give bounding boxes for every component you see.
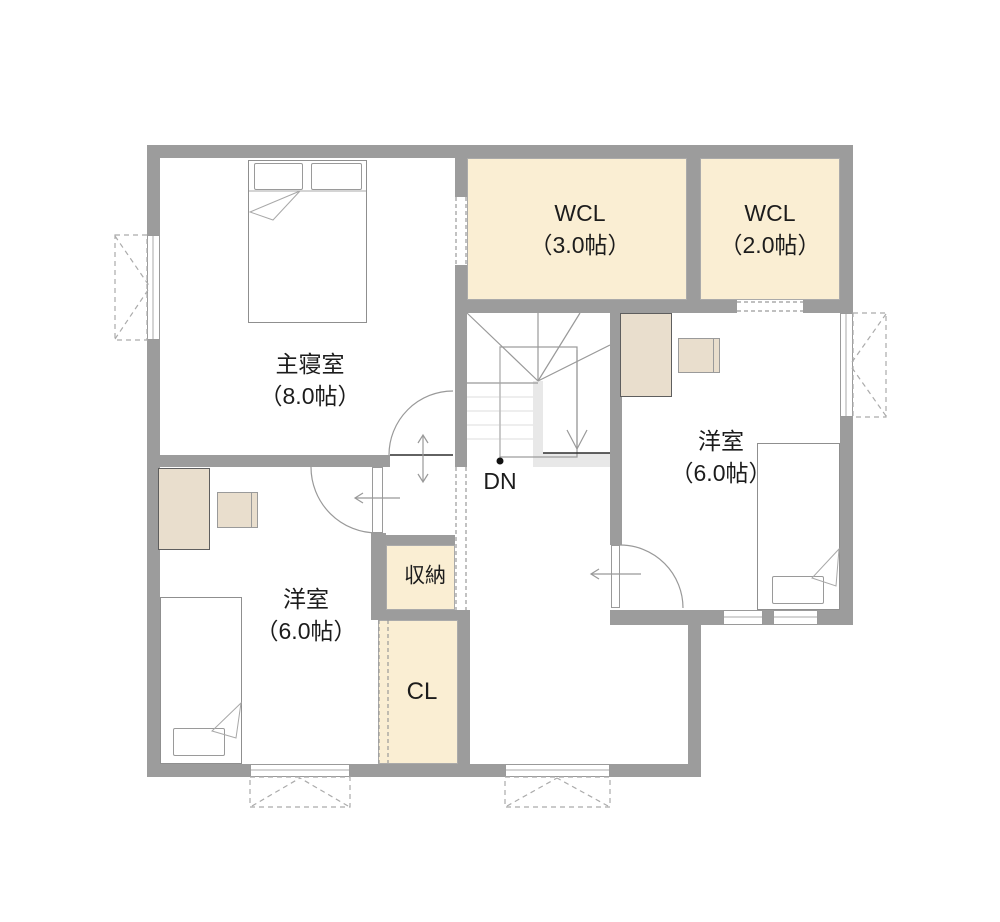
wall-rightroom-bottom-a xyxy=(610,610,723,625)
wall-wcl-bottom-right xyxy=(803,300,853,313)
door-leaf-rightroom xyxy=(611,545,620,608)
room-name: CL xyxy=(407,675,438,709)
desk-rightroom xyxy=(678,338,720,373)
room-name: WCL xyxy=(720,197,821,229)
room-name: WCL xyxy=(530,197,631,229)
room-name: 収納 xyxy=(404,561,446,590)
label-stairs-dn: DN xyxy=(483,465,516,497)
pillow-master-right xyxy=(311,163,362,190)
window-rightroom-bottom-1 xyxy=(723,610,763,625)
wall-bottom-b xyxy=(350,764,505,777)
room-size: （6.0帖） xyxy=(256,615,357,647)
window-master-left xyxy=(147,235,160,340)
window-leftroom-bottom xyxy=(250,764,350,777)
room-size: （3.0帖） xyxy=(530,229,631,261)
window-casement-icon-left xyxy=(115,235,150,340)
wall-right-upper xyxy=(840,145,853,313)
dn-leader xyxy=(497,347,504,465)
staircase xyxy=(467,313,610,467)
wall-hall-right xyxy=(688,610,701,777)
wall-master-bottom xyxy=(147,455,390,467)
label-storage: 収納 xyxy=(404,561,446,590)
room-name: 洋室 xyxy=(671,425,772,457)
window-hall-bottom xyxy=(505,764,610,777)
wall-master-right xyxy=(455,265,467,467)
label-western-room-left: 洋室 （6.0帖） xyxy=(256,583,357,647)
window-casement-icon-bottom-left xyxy=(250,777,350,807)
door-gap-wcl-small xyxy=(737,300,803,313)
wall-rightroom-bottom-b xyxy=(763,610,773,625)
desk-edge xyxy=(713,339,714,372)
door-leftroom xyxy=(311,467,400,533)
wall-left-upper xyxy=(147,145,160,235)
stair-divider xyxy=(533,381,543,467)
wardrobe-rightroom xyxy=(620,313,672,397)
label-wcl-small: WCL （2.0帖） xyxy=(720,197,821,261)
wardrobe-leftroom xyxy=(158,468,210,550)
wall-closet-right xyxy=(458,620,470,764)
door-master-bedroom xyxy=(389,391,453,482)
stair-landing xyxy=(533,453,610,467)
door-rightroom xyxy=(591,545,683,608)
room-size: （6.0帖） xyxy=(671,457,772,489)
floor-plan: 主寝室 （8.0帖） WCL （3.0帖） WCL （2.0帖） 洋室 （6.0… xyxy=(0,0,1000,922)
pillow-leftroom xyxy=(173,728,225,756)
label-closet: CL xyxy=(407,675,438,709)
wall-wcl-left-upper xyxy=(455,155,467,197)
wall-top xyxy=(147,145,853,158)
wall-wcl-bottom-left xyxy=(455,300,737,313)
wall-storage-top xyxy=(371,535,455,545)
window-casement-icon-bottom-hall xyxy=(505,777,610,807)
pillow-master-left xyxy=(254,163,303,190)
door-leaf-leftroom xyxy=(372,467,383,533)
window-casement-icon-right xyxy=(850,313,886,417)
room-size: （8.0帖） xyxy=(260,380,361,412)
wall-storage-bottom xyxy=(371,610,470,620)
window-rightroom-right xyxy=(840,313,853,417)
door-gap-wcl-large xyxy=(455,197,467,265)
room-size: （2.0帖） xyxy=(720,229,821,261)
wall-left-lower xyxy=(147,340,160,777)
wall-leftroom-right xyxy=(371,533,386,620)
stairs-down-arrow xyxy=(567,350,587,449)
desk-leftroom xyxy=(217,492,258,528)
room-name: 主寝室 xyxy=(260,348,361,380)
wall-right-lower xyxy=(840,417,853,625)
label-master-bedroom: 主寝室 （8.0帖） xyxy=(260,348,361,412)
label-western-room-right: 洋室 （6.0帖） xyxy=(671,425,772,489)
wall-bottom-a xyxy=(147,764,250,777)
stairs-direction: DN xyxy=(483,465,516,497)
label-wcl-large: WCL （3.0帖） xyxy=(530,197,631,261)
room-name: 洋室 xyxy=(256,583,357,615)
door-dashed-storage xyxy=(456,467,466,610)
desk-edge xyxy=(251,493,252,527)
wall-wcl-divider xyxy=(687,155,700,300)
window-rightroom-bottom-2 xyxy=(773,610,818,625)
pillow-rightroom xyxy=(772,576,824,604)
